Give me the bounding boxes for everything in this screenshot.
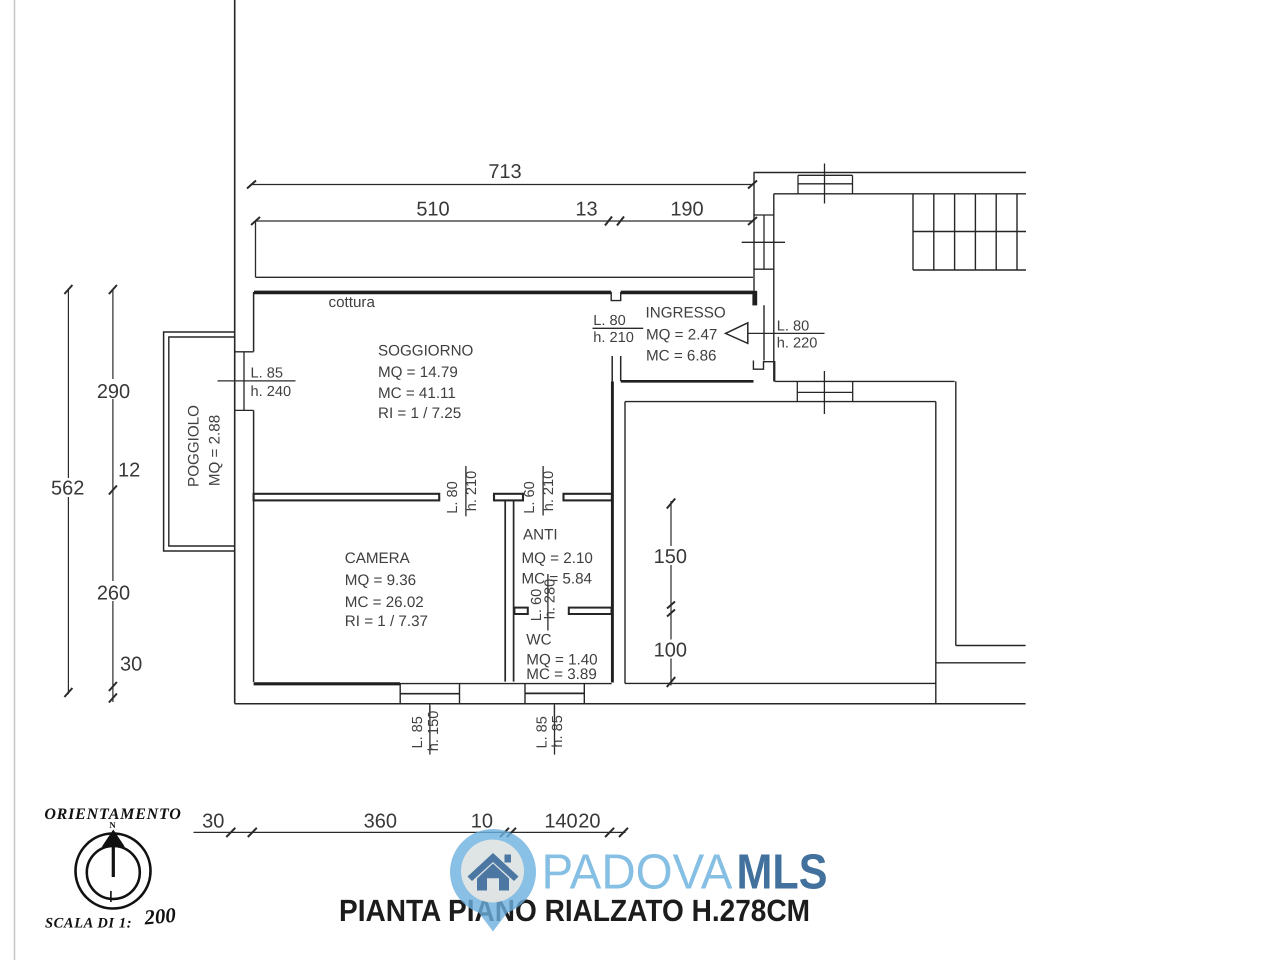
svg-text:290: 290 xyxy=(97,381,130,403)
svg-text:510: 510 xyxy=(416,199,449,221)
svg-text:13: 13 xyxy=(575,199,597,221)
svg-text:L. 85: L. 85 xyxy=(251,366,283,382)
svg-text:ANTI: ANTI xyxy=(523,526,558,543)
svg-text:12: 12 xyxy=(118,460,140,482)
svg-text:WC: WC xyxy=(526,631,551,648)
svg-text:L. 80: L. 80 xyxy=(593,313,625,329)
svg-text:150: 150 xyxy=(654,546,687,568)
svg-text:MC = 6.86: MC = 6.86 xyxy=(646,347,717,364)
svg-text:MC = 3.89: MC = 3.89 xyxy=(526,666,597,683)
svg-text:L. 80: L. 80 xyxy=(777,319,809,335)
svg-text:RI = 1 / 7.25: RI = 1 / 7.25 xyxy=(378,405,461,422)
svg-text:L. 85: L. 85 xyxy=(410,716,426,748)
svg-text:INGRESSO: INGRESSO xyxy=(646,304,726,321)
svg-text:PADOVA: PADOVA xyxy=(542,845,733,900)
svg-text:MQ = 9.36: MQ = 9.36 xyxy=(345,572,416,589)
svg-text:h. 85: h. 85 xyxy=(550,715,566,747)
svg-text:MC = 5.84: MC = 5.84 xyxy=(522,570,593,587)
svg-text:h. 210: h. 210 xyxy=(593,330,634,346)
svg-text:SOGGIORNO: SOGGIORNO xyxy=(378,343,474,360)
svg-text:N: N xyxy=(109,820,116,830)
svg-text:L. 60: L. 60 xyxy=(522,481,538,513)
svg-text:SCALA DI 1:: SCALA DI 1: xyxy=(45,916,132,932)
svg-text:260: 260 xyxy=(97,583,130,605)
svg-text:190: 190 xyxy=(670,199,703,221)
svg-text:30: 30 xyxy=(120,654,142,676)
svg-text:L. 85: L. 85 xyxy=(535,716,551,748)
svg-text:562: 562 xyxy=(51,478,84,500)
svg-text:20: 20 xyxy=(578,810,600,832)
svg-text:RI = 1 / 7.37: RI = 1 / 7.37 xyxy=(345,613,428,630)
svg-text:140: 140 xyxy=(544,810,577,832)
svg-text:200: 200 xyxy=(142,903,177,930)
svg-text:10: 10 xyxy=(471,810,493,832)
svg-text:L. 80: L. 80 xyxy=(445,481,461,513)
svg-text:MQ = 2.10: MQ = 2.10 xyxy=(522,550,593,567)
svg-text:MQ = 2.47: MQ = 2.47 xyxy=(646,326,717,343)
svg-text:MQ = 14.79: MQ = 14.79 xyxy=(378,364,458,381)
svg-text:100: 100 xyxy=(654,640,687,662)
svg-text:MQ = 2.88: MQ = 2.88 xyxy=(207,415,224,486)
svg-text:h. 150: h. 150 xyxy=(426,711,442,752)
svg-text:cottura: cottura xyxy=(329,294,376,311)
svg-text:POGGIOLO: POGGIOLO xyxy=(186,405,203,487)
svg-text:MC = 41.11: MC = 41.11 xyxy=(378,385,456,402)
svg-text:30: 30 xyxy=(202,810,224,832)
svg-text:h. 210: h. 210 xyxy=(541,471,557,512)
svg-text:h. 220: h. 220 xyxy=(777,335,818,351)
svg-text:h. 240: h. 240 xyxy=(251,384,292,400)
svg-text:360: 360 xyxy=(364,810,397,832)
svg-text:713: 713 xyxy=(488,161,521,183)
svg-text:CAMERA: CAMERA xyxy=(345,550,411,567)
svg-text:MC = 26.02: MC = 26.02 xyxy=(345,594,424,611)
svg-text:h. 210: h. 210 xyxy=(464,471,480,512)
svg-text:MLS: MLS xyxy=(737,845,828,900)
